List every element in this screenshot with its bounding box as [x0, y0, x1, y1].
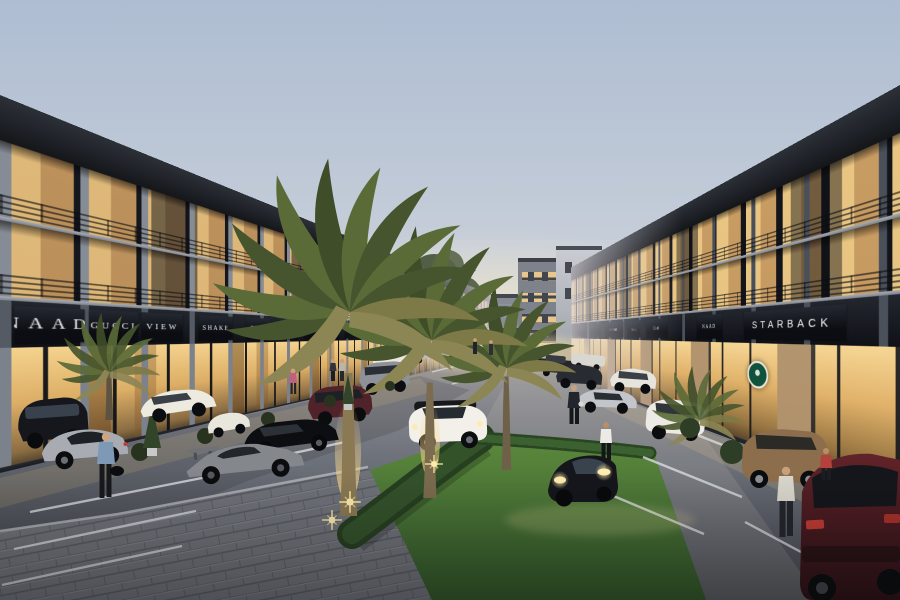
- couple-far: [330, 359, 346, 381]
- bottom-vignette: [0, 470, 900, 600]
- street-scene-rendering: NAAD GUCCI VIEW SHAKE TEXT SEXT FILM: [0, 0, 900, 600]
- street-layer: [0, 0, 900, 600]
